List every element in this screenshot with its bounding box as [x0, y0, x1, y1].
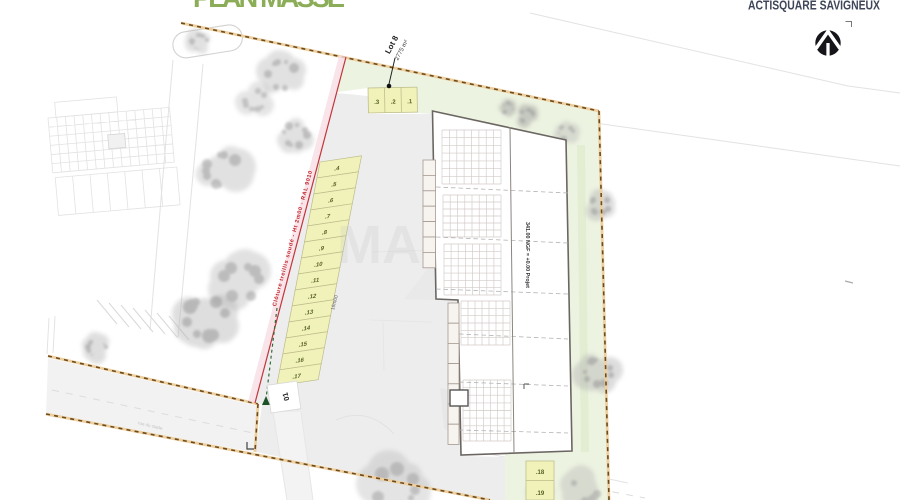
svg-text:.1: .1	[407, 99, 413, 105]
svg-text:.18: .18	[536, 470, 545, 476]
svg-text:PLAN MASSE: PLAN MASSE	[193, 0, 345, 13]
svg-text:ACTISQUARE SAVIGNEUX: ACTISQUARE SAVIGNEUX	[748, 0, 881, 13]
svg-text:.19: .19	[536, 491, 545, 497]
svg-text:MA: MA	[337, 215, 421, 275]
svg-text:341.00 NGF = +0.00 Projet: 341.00 NGF = +0.00 Projet	[524, 222, 530, 288]
svg-text:.2: .2	[391, 100, 397, 106]
svg-text:.3: .3	[374, 100, 380, 106]
